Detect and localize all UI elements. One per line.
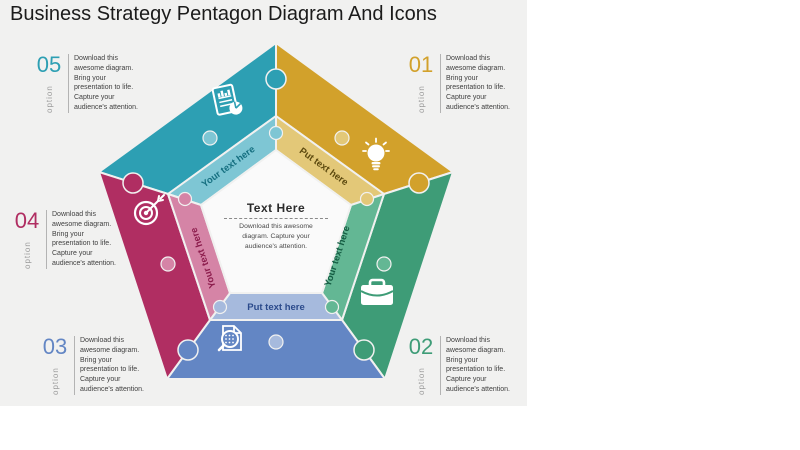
- option-number: 03: [43, 336, 67, 358]
- strip-label-bottom: Put text here: [247, 302, 305, 313]
- puzzle-knob: [269, 335, 283, 349]
- center-description: Download this awesome diagram. Capture y…: [216, 222, 336, 252]
- puzzle-knob: [203, 131, 217, 145]
- puzzle-knob: [266, 69, 286, 89]
- option-number: 02: [409, 336, 433, 358]
- puzzle-knob: [178, 340, 198, 360]
- puzzle-knob: [354, 340, 374, 360]
- option-label: option: [417, 79, 426, 113]
- puzzle-knob: [326, 301, 339, 314]
- dashed-divider: [224, 218, 328, 219]
- puzzle-knob: [361, 193, 374, 206]
- option-number: 05: [37, 54, 61, 76]
- option-label: option: [417, 361, 426, 395]
- option-description: Download this awesome diagram. Bring you…: [440, 336, 510, 395]
- option-description: Download this awesome diagram. Bring you…: [46, 210, 116, 269]
- slide-canvas: Business Strategy Pentagon Diagram And I…: [0, 0, 527, 406]
- option-description: Download this awesome diagram. Bring you…: [68, 54, 138, 113]
- option-label: option: [45, 79, 54, 113]
- option-block-05: 05 option Download this awesome diagram.…: [34, 54, 164, 113]
- puzzle-knob: [377, 257, 391, 271]
- puzzle-knob: [179, 193, 192, 206]
- option-label: option: [51, 361, 60, 395]
- puzzle-knob: [270, 127, 283, 140]
- center-text-block: Text Here Download this awesome diagram.…: [216, 201, 336, 252]
- option-block-01: 01 option Download this awesome diagram.…: [406, 54, 530, 113]
- option-block-02: 02 option Download this awesome diagram.…: [406, 336, 532, 395]
- puzzle-knob: [161, 257, 175, 271]
- option-number: 04: [15, 210, 39, 232]
- puzzle-knob: [214, 301, 227, 314]
- option-description: Download this awesome diagram. Bring you…: [74, 336, 144, 395]
- puzzle-knob: [335, 131, 349, 145]
- option-block-04: 04 option Download this awesome diagram.…: [12, 210, 132, 269]
- option-block-03: 03 option Download this awesome diagram.…: [40, 336, 172, 395]
- center-title: Text Here: [216, 201, 336, 215]
- option-description: Download this awesome diagram. Bring you…: [440, 54, 510, 113]
- puzzle-knob: [409, 173, 429, 193]
- puzzle-knob: [123, 173, 143, 193]
- option-label: option: [23, 235, 32, 269]
- option-number: 01: [409, 54, 433, 76]
